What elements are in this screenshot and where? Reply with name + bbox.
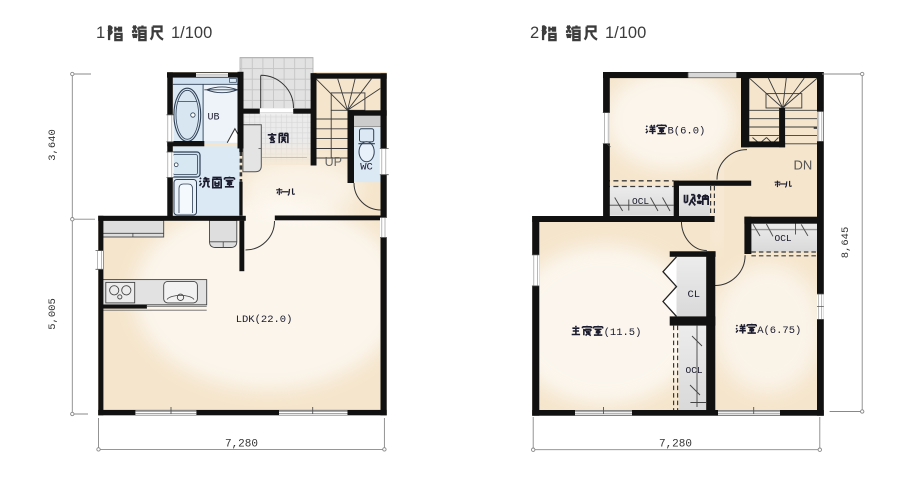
svg-text:UP: UP: [325, 155, 342, 169]
svg-text:LDK(22.0): LDK(22.0): [236, 314, 293, 326]
svg-text:OCL: OCL: [775, 233, 792, 244]
svg-text:OCL: OCL: [632, 196, 649, 207]
svg-text:(11.5): (11.5): [604, 327, 642, 339]
svg-text:1/100: 1/100: [171, 24, 212, 42]
svg-text:3,640: 3,640: [47, 129, 59, 161]
svg-text:A(6.75): A(6.75): [757, 325, 801, 337]
svg-text:2: 2: [530, 24, 539, 42]
svg-text:5,005: 5,005: [47, 298, 59, 330]
svg-text:DN: DN: [794, 158, 813, 173]
svg-text:7,280: 7,280: [659, 439, 692, 451]
svg-text:7,280: 7,280: [225, 439, 258, 451]
svg-text:1/100: 1/100: [605, 24, 646, 42]
svg-text:UB: UB: [208, 113, 220, 124]
svg-text:OCL: OCL: [686, 365, 703, 376]
svg-text:CL: CL: [688, 289, 701, 301]
svg-text:8,645: 8,645: [840, 227, 852, 259]
svg-text:B(6.0): B(6.0): [668, 126, 706, 138]
svg-text:WC: WC: [360, 162, 373, 174]
svg-text:1: 1: [96, 24, 105, 42]
